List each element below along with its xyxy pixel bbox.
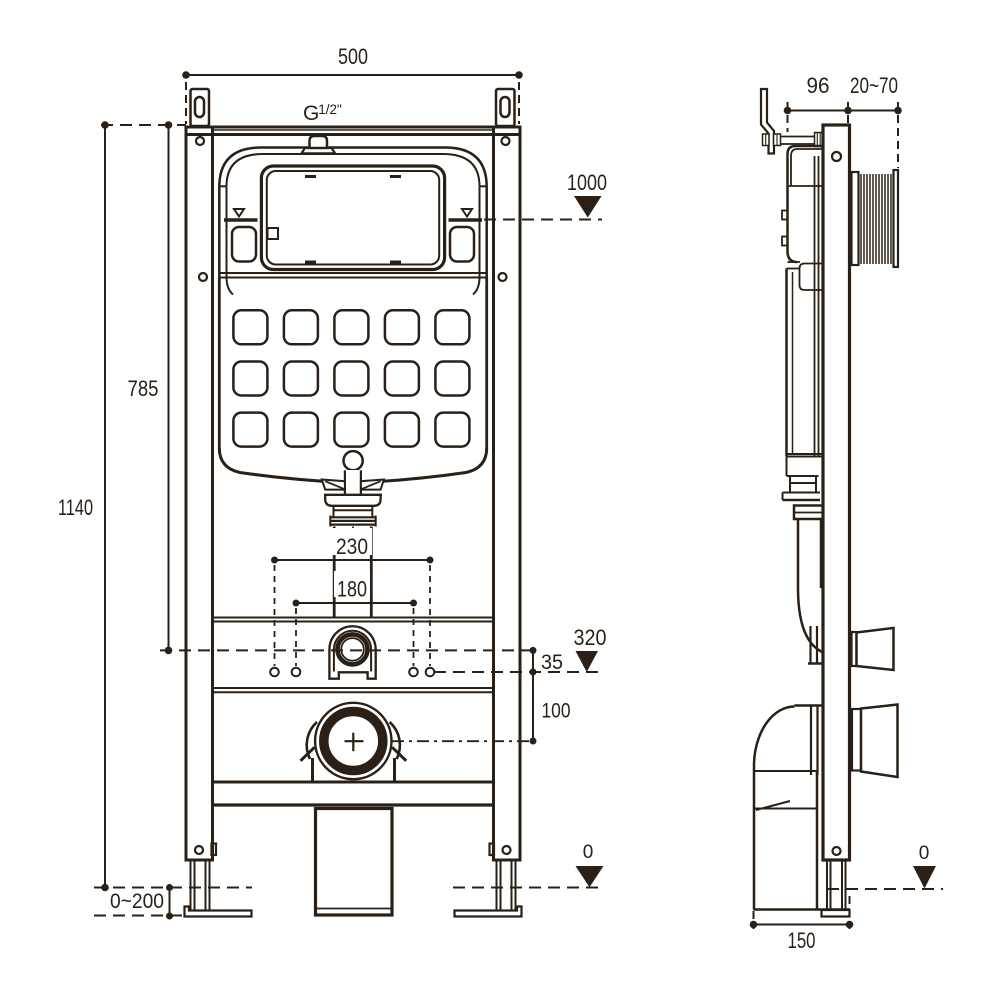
svg-text:180: 180 xyxy=(337,577,367,602)
svg-text:0~200: 0~200 xyxy=(110,890,164,913)
svg-text:500: 500 xyxy=(338,44,368,69)
svg-text:1/2": 1/2" xyxy=(318,102,342,117)
svg-text:0: 0 xyxy=(919,843,930,864)
svg-text:1000: 1000 xyxy=(567,170,607,195)
svg-text:G: G xyxy=(303,102,319,125)
svg-text:150: 150 xyxy=(788,928,816,953)
svg-text:20~70: 20~70 xyxy=(850,73,898,98)
svg-text:35: 35 xyxy=(541,651,563,674)
svg-text:100: 100 xyxy=(542,700,571,723)
svg-text:1140: 1140 xyxy=(58,495,93,520)
svg-text:230: 230 xyxy=(336,534,368,559)
svg-text:785: 785 xyxy=(128,376,159,401)
svg-text:320: 320 xyxy=(574,625,607,650)
svg-text:96: 96 xyxy=(807,73,830,98)
svg-text:0: 0 xyxy=(583,842,594,863)
